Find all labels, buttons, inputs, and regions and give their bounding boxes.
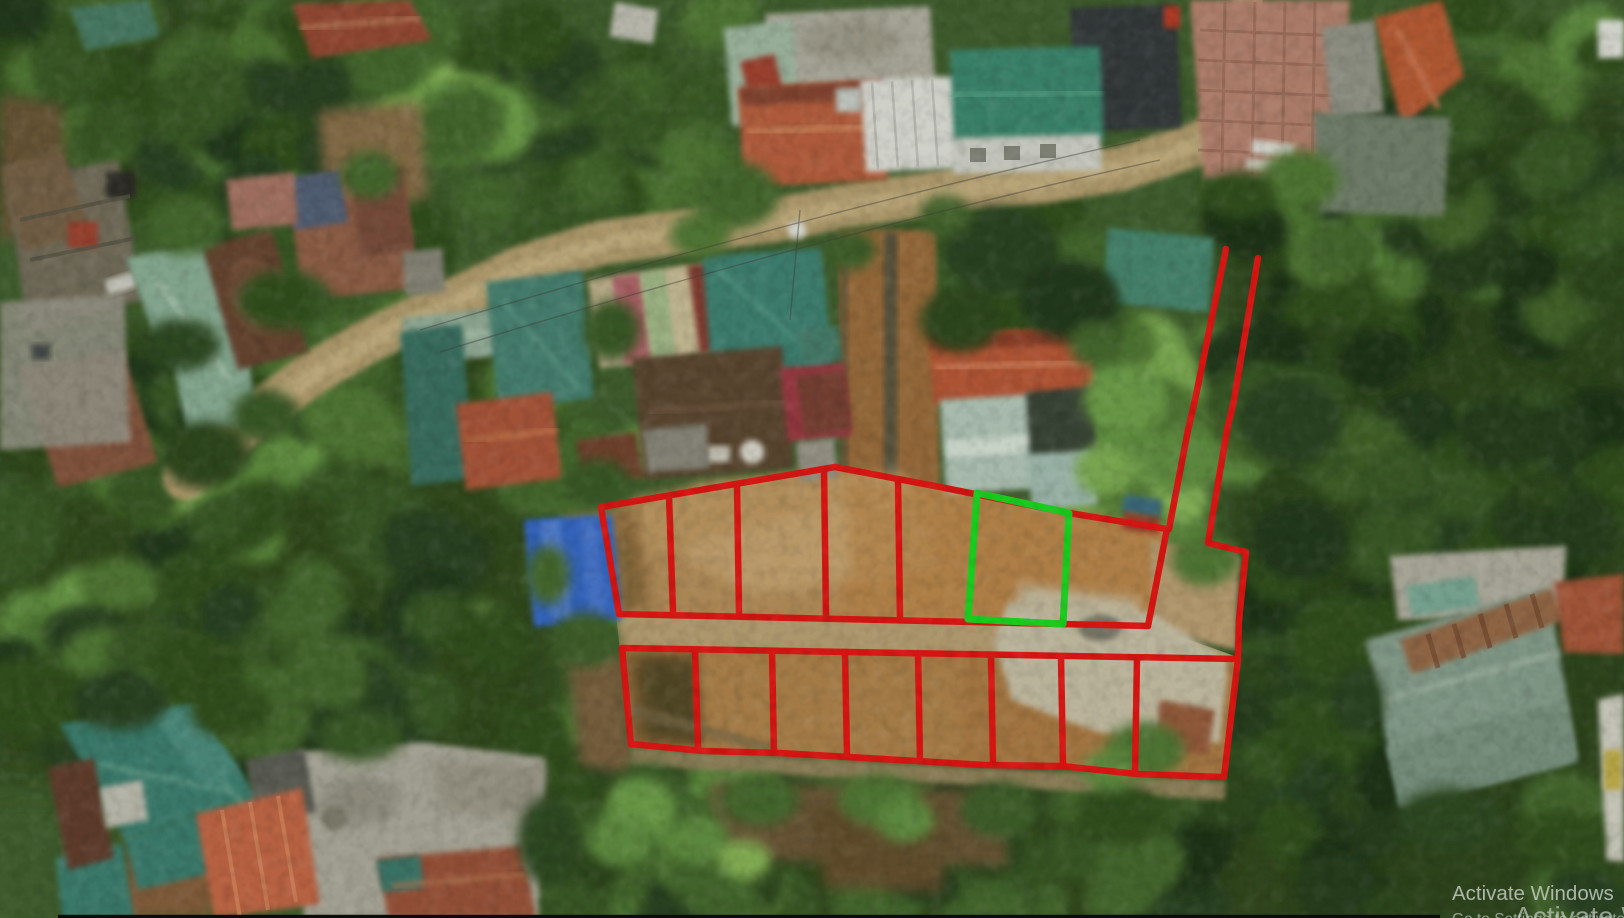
svg-text:Activate Windo: Activate Windo [1514,901,1624,918]
